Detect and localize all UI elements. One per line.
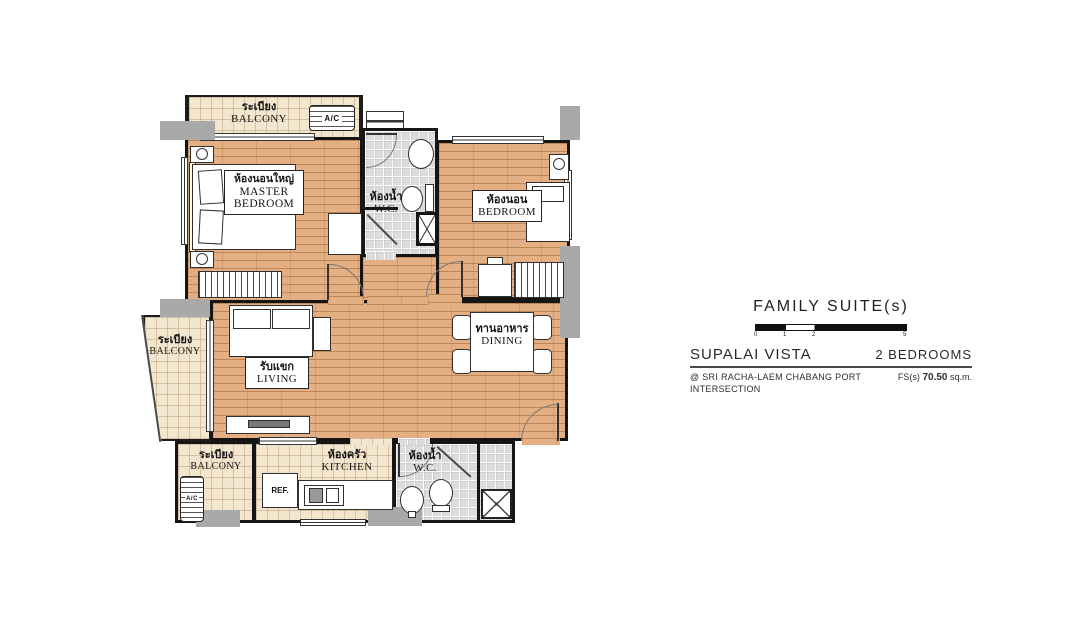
dining-chair	[532, 349, 552, 374]
kitchen-sink-basin	[326, 488, 339, 503]
lamp-icon	[553, 158, 565, 170]
toilet-tank	[432, 505, 450, 512]
bedroom-count: 2 BEDROOMS	[875, 347, 972, 362]
room-label-en: BALCONY	[184, 461, 248, 472]
master-dresser	[328, 213, 362, 255]
room-label-balcony-top: ระเบียง BALCONY	[220, 101, 298, 125]
toilet-icon	[429, 479, 453, 507]
room-label-en: BALCONY	[146, 346, 204, 357]
window-kitchen-bottom	[300, 519, 366, 526]
scale-bar-graphic	[755, 324, 907, 331]
room-label-balcony-left: ระเบียง BALCONY	[146, 334, 204, 357]
refrigerator-label: REF.	[271, 486, 288, 495]
scale-tick: 2	[812, 332, 815, 338]
room-label-balcony-bottom: ระเบียง BALCONY	[184, 449, 248, 472]
sink-icon	[400, 486, 424, 514]
sink-pedestal	[408, 511, 416, 518]
project-location: @ SRI RACHA-LAEM CHABANG PORT INTERSECTI…	[690, 372, 861, 395]
column-left-mid	[160, 299, 210, 317]
room-label-thai: ห้องนอนใหญ่	[227, 174, 301, 186]
location-line1: @ SRI RACHA-LAEM CHABANG PORT	[690, 372, 861, 384]
shaft-bottom	[481, 489, 512, 519]
room-label-thai: ระเบียง	[184, 449, 248, 461]
scale-bar: 0 1 2 5	[755, 324, 907, 340]
sofa-cushion	[272, 309, 310, 329]
room-label-en: KITCHEN	[310, 461, 384, 473]
project-name: SUPALAI VISTA	[690, 346, 812, 363]
room-label-thai: ทานอาหาร	[469, 323, 535, 335]
room-label-thai: รับแขก	[248, 361, 306, 373]
room-label-thai: ระเบียง	[220, 101, 298, 113]
window-master-to-balcony-top	[200, 133, 315, 141]
ac-unit-label: A/C	[322, 114, 341, 123]
scale-tick: 1	[783, 332, 786, 338]
ac-unit-top: A/C	[309, 105, 355, 131]
opening-hall-to-living	[367, 296, 433, 306]
wall-wc-bottom-divider	[477, 444, 480, 520]
lamp-icon	[196, 253, 208, 265]
project-row: SUPALAI VISTA 2 BEDROOMS	[690, 346, 972, 368]
ac-unit-label: A/C	[185, 496, 199, 502]
sink-icon	[408, 139, 434, 169]
room-label-thai: ห้องน้ำ	[398, 450, 452, 462]
location-line2: INTERSECTION	[690, 384, 861, 396]
room-label-living: รับแขก LIVING	[245, 357, 309, 389]
bedroom-desk	[478, 264, 512, 297]
window-bedroom-top	[452, 136, 544, 144]
window-living-to-balcony-bottom	[259, 437, 317, 445]
room-label-thai: ห้องครัว	[310, 449, 384, 461]
room-label-wc-bottom: ห้องน้ำ W.C.	[398, 450, 452, 474]
door-bedroom	[461, 261, 463, 297]
master-bed-pillow	[198, 209, 224, 244]
room-label-thai: ห้องนอน	[475, 194, 539, 206]
column-top-left	[160, 121, 215, 140]
room-label-en: W.C.	[362, 203, 410, 215]
dining-chair	[452, 349, 472, 374]
tv	[248, 420, 290, 428]
unit-area: FS(s) 70.50 sq.m.	[898, 372, 972, 395]
unit-type-title: FAMILY SUITE(s)	[690, 298, 972, 316]
sofa-cushion	[233, 309, 271, 329]
dining-chair	[532, 315, 552, 340]
room-label-en: DINING	[469, 335, 535, 347]
room-label-dining: ทานอาหาร DINING	[469, 323, 535, 347]
scale-tick: 0	[754, 332, 757, 338]
scale-tick: 5	[903, 332, 906, 338]
info-panel: FAMILY SUITE(s) 0 1 2 5 SUPALAI VISTA 2 …	[690, 298, 972, 395]
room-label-en: W.C.	[398, 462, 452, 474]
room-label-thai: ห้องน้ำ	[362, 191, 410, 203]
room-label-en: BALCONY	[220, 113, 298, 125]
room-label-en: MASTER BEDROOM	[227, 186, 301, 211]
toilet-tank	[425, 184, 434, 212]
room-label-en: LIVING	[248, 373, 306, 385]
window-master-left	[181, 157, 188, 245]
master-wardrobe	[198, 271, 282, 298]
area-prefix: FS(s)	[898, 372, 920, 382]
ac-unit-bottom: A/C	[180, 476, 204, 522]
window-living-to-balcony-left	[206, 320, 214, 432]
room-label-en: BEDROOM	[475, 206, 539, 218]
kitchen-sink-basin	[309, 488, 323, 503]
room-label-wc-top: ห้องน้ำ W.C.	[362, 191, 410, 215]
area-value: 70.50	[922, 372, 947, 383]
room-label-thai: ระเบียง	[146, 334, 204, 346]
bedroom-wardrobe	[514, 262, 564, 298]
room-label-master-bedroom: ห้องนอนใหญ่ MASTER BEDROOM	[224, 170, 304, 215]
lamp-icon	[196, 148, 208, 160]
column-right-upper	[560, 106, 580, 140]
master-bed-pillow	[198, 169, 224, 205]
detail-row: @ SRI RACHA-LAEM CHABANG PORT INTERSECTI…	[690, 372, 972, 395]
opening-kitchen	[350, 438, 392, 445]
refrigerator: REF.	[262, 473, 298, 508]
room-label-kitchen: ห้องครัว KITCHEN	[310, 449, 384, 473]
opening-wc-top-door	[366, 251, 396, 260]
shaft-top	[416, 212, 438, 246]
area-unit: sq.m.	[950, 372, 972, 382]
side-table	[313, 317, 331, 351]
room-label-bedroom: ห้องนอน BEDROOM	[472, 190, 542, 222]
